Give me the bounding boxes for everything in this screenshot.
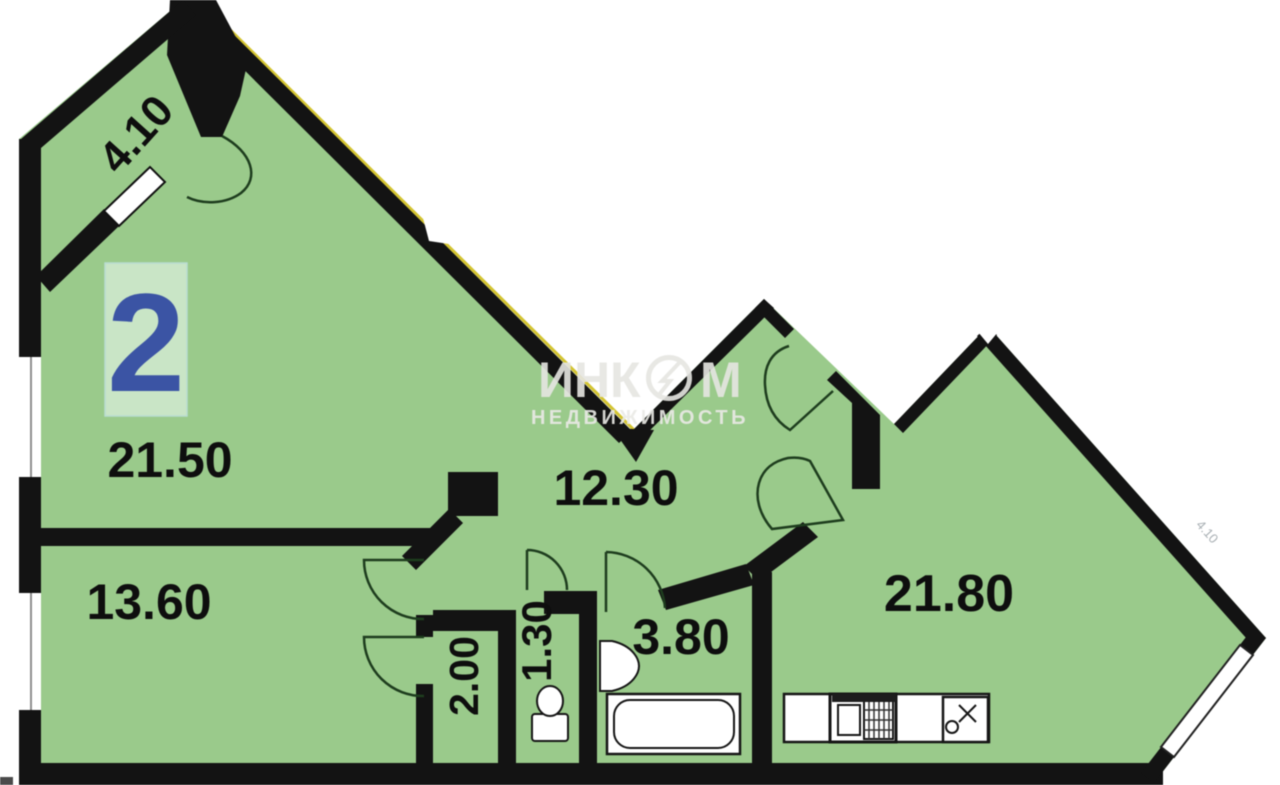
svg-text:НЕДВИЖИМОСТЬ: НЕДВИЖИМОСТЬ — [531, 407, 749, 429]
svg-text:21.50: 21.50 — [107, 432, 232, 488]
svg-text:2: 2 — [107, 264, 185, 421]
svg-text:13.60: 13.60 — [86, 574, 211, 630]
svg-text:3.80: 3.80 — [632, 609, 729, 665]
svg-text:ИНК: ИНК — [538, 352, 641, 408]
svg-text:21.80: 21.80 — [884, 565, 1014, 623]
svg-text:1.30: 1.30 — [513, 600, 560, 682]
svg-text:2.00: 2.00 — [441, 636, 487, 716]
svg-text:М: М — [700, 352, 742, 408]
svg-text:12.30: 12.30 — [553, 460, 678, 516]
